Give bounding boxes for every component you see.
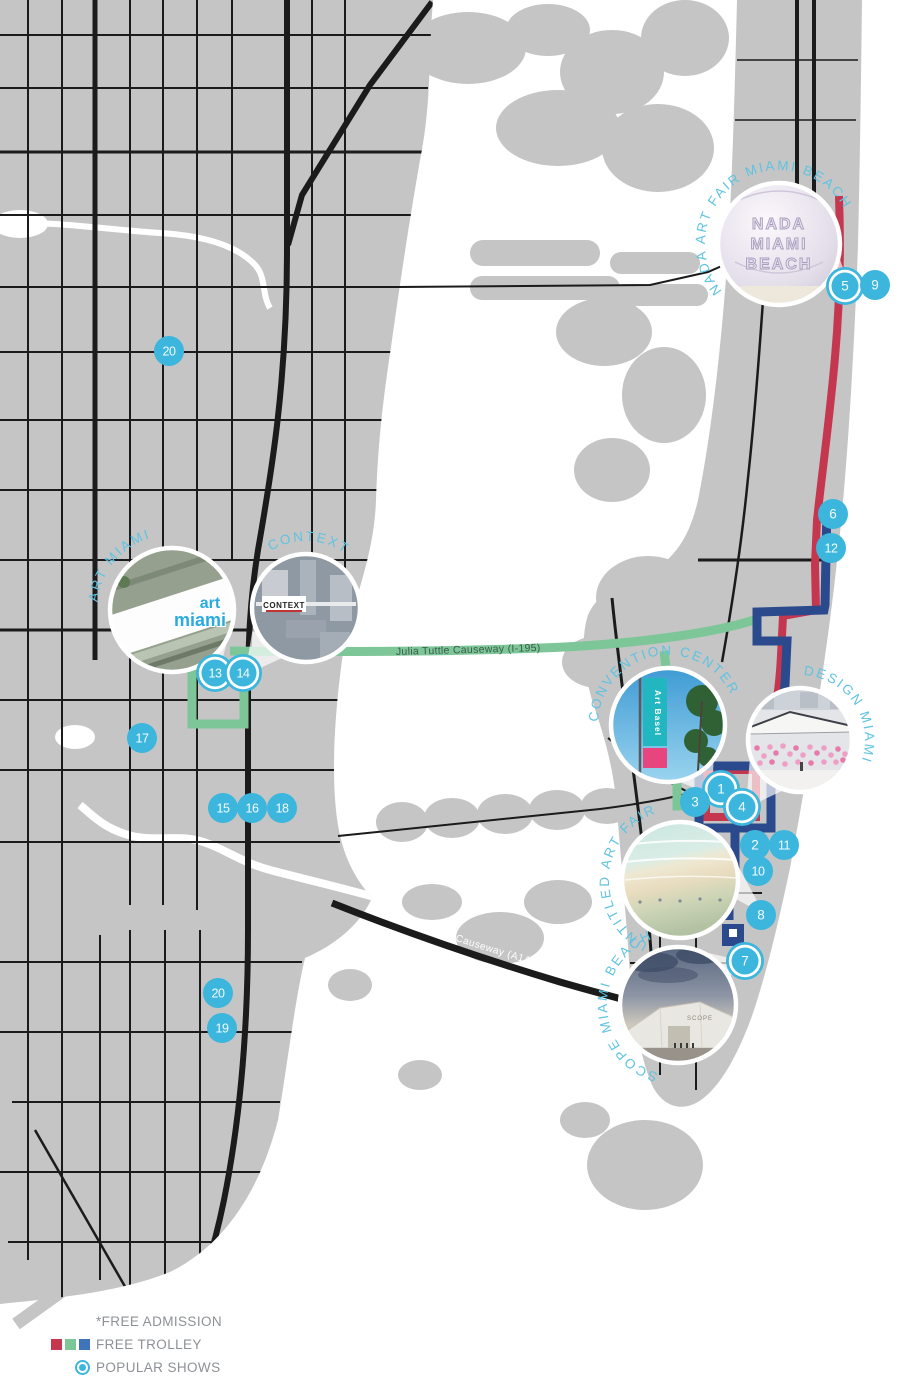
svg-text:2: 2	[751, 838, 759, 853]
legend-row-free-admission: *FREE ADMISSION	[50, 1310, 222, 1333]
blue-trolley-swatch	[79, 1339, 90, 1350]
red-trolley-swatch	[51, 1339, 62, 1350]
map-marker-8[interactable]: 8	[746, 900, 776, 930]
legend-free-trolley-label: FREE TROLLEY	[96, 1337, 202, 1352]
map-canvas: MacArthur Causeway (A1A)Julia Tuttle Cau…	[0, 0, 900, 1395]
svg-text:7: 7	[741, 954, 749, 969]
legend-free-admission-label: *FREE ADMISSION	[96, 1314, 222, 1329]
svg-text:5: 5	[841, 279, 849, 294]
map-marker-4[interactable]: 4	[723, 788, 761, 826]
green-trolley-swatch	[65, 1339, 76, 1350]
svg-text:15: 15	[217, 802, 230, 816]
svg-text:20: 20	[163, 345, 176, 359]
map-marker-17[interactable]: 17	[127, 723, 157, 753]
svg-text:20: 20	[212, 987, 225, 1001]
miami-art-week-map: MacArthur Causeway (A1A)Julia Tuttle Cau…	[0, 0, 900, 1395]
map-marker-10[interactable]: 10	[743, 856, 773, 886]
legend-row-popular-shows: POPULAR SHOWS	[50, 1356, 222, 1379]
map-marker-20-b[interactable]: 20	[203, 978, 233, 1008]
popular-shows-icon	[75, 1360, 90, 1375]
svg-text:19: 19	[216, 1022, 229, 1036]
svg-text:miami: miami	[174, 610, 226, 630]
svg-text:CONTEXT: CONTEXT	[263, 601, 305, 610]
svg-text:10: 10	[752, 865, 765, 879]
map-marker-7[interactable]: 7	[726, 942, 764, 980]
svg-text:14: 14	[237, 667, 250, 681]
svg-text:17: 17	[136, 732, 149, 746]
map-marker-15[interactable]: 15	[208, 793, 238, 823]
map-marker-12[interactable]: 12	[816, 533, 846, 563]
svg-text:12: 12	[825, 542, 838, 556]
svg-text:NADA: NADA	[752, 216, 806, 233]
svg-text:9: 9	[871, 278, 879, 293]
julia-tuttle-causeway-label: Julia Tuttle Causeway (I-195)	[396, 642, 541, 658]
map-marker-6[interactable]: 6	[818, 499, 848, 529]
map-marker-18[interactable]: 18	[267, 793, 297, 823]
legend-popular-shows-label: POPULAR SHOWS	[96, 1360, 220, 1375]
svg-text:6: 6	[829, 507, 837, 522]
svg-text:8: 8	[757, 908, 765, 923]
svg-text:SCOPE: SCOPE	[687, 1016, 713, 1022]
map-marker-19[interactable]: 19	[207, 1013, 237, 1043]
map-marker-3[interactable]: 3	[680, 787, 710, 817]
map-marker-11[interactable]: 11	[769, 830, 799, 860]
svg-text:3: 3	[691, 795, 699, 810]
svg-text:MIAMI: MIAMI	[750, 236, 807, 253]
svg-text:Art Basel: Art Basel	[653, 690, 663, 736]
legend-row-free-trolley: FREE TROLLEY	[50, 1333, 222, 1356]
svg-text:18: 18	[276, 802, 289, 816]
map-marker-20[interactable]: 20	[154, 336, 184, 366]
svg-text:1: 1	[717, 782, 725, 797]
legend: *FREE ADMISSION FREE TROLLEY POPULAR SHO…	[50, 1310, 222, 1379]
map-marker-16[interactable]: 16	[237, 793, 267, 823]
map-marker-14[interactable]: 14	[224, 654, 262, 692]
map-marker-5[interactable]: 5	[826, 267, 864, 305]
trolley-color-swatches	[50, 1339, 90, 1350]
svg-text:11: 11	[778, 839, 791, 853]
svg-text:4: 4	[738, 800, 746, 815]
svg-text:13: 13	[209, 667, 222, 681]
svg-text:16: 16	[246, 802, 259, 816]
map-marker-2[interactable]: 2	[740, 830, 770, 860]
svg-text:BEACH: BEACH	[746, 256, 813, 273]
map-marker-9[interactable]: 9	[860, 270, 890, 300]
